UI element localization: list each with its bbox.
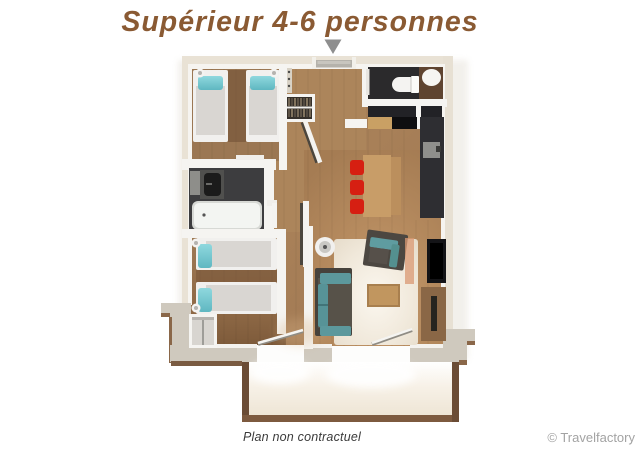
- svg-text:Plan non contractuel: Plan non contractuel: [243, 430, 362, 444]
- svg-text:© Travelfactory: © Travelfactory: [547, 430, 635, 445]
- svg-text:Supérieur 4-6 personnes: Supérieur 4-6 personnes: [121, 6, 478, 38]
